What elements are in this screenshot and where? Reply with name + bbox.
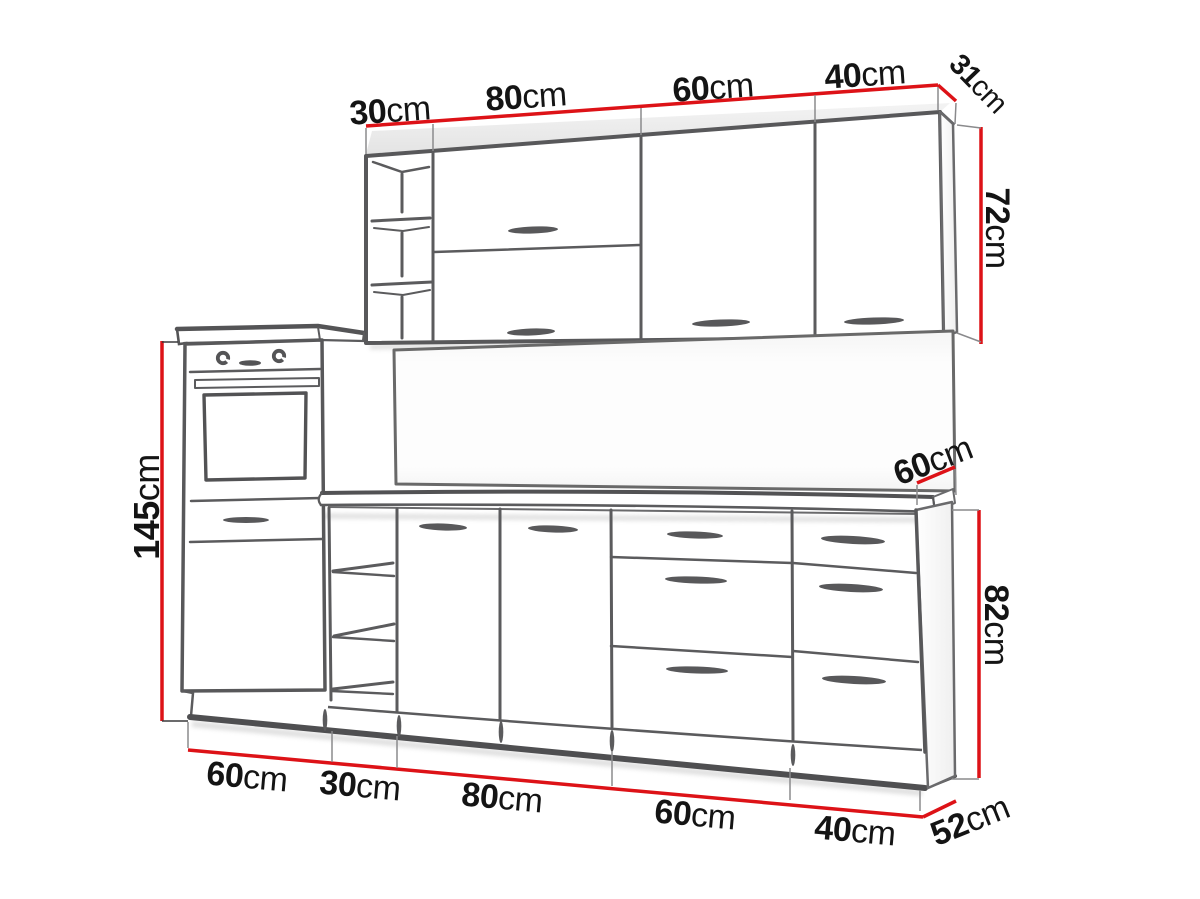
svg-text:30cm: 30cm: [348, 89, 432, 133]
svg-text:80cm: 80cm: [484, 75, 568, 119]
svg-text:30cm: 30cm: [318, 764, 402, 809]
svg-text:60cm: 60cm: [653, 793, 737, 838]
svg-text:60cm: 60cm: [205, 755, 289, 800]
svg-text:145cm: 145cm: [126, 454, 167, 560]
svg-text:40cm: 40cm: [823, 53, 907, 97]
svg-text:60cm: 60cm: [671, 66, 755, 110]
svg-text:82cm: 82cm: [977, 584, 1015, 665]
svg-text:80cm: 80cm: [460, 776, 544, 821]
svg-text:72cm: 72cm: [978, 187, 1016, 268]
svg-text:40cm: 40cm: [813, 809, 897, 854]
